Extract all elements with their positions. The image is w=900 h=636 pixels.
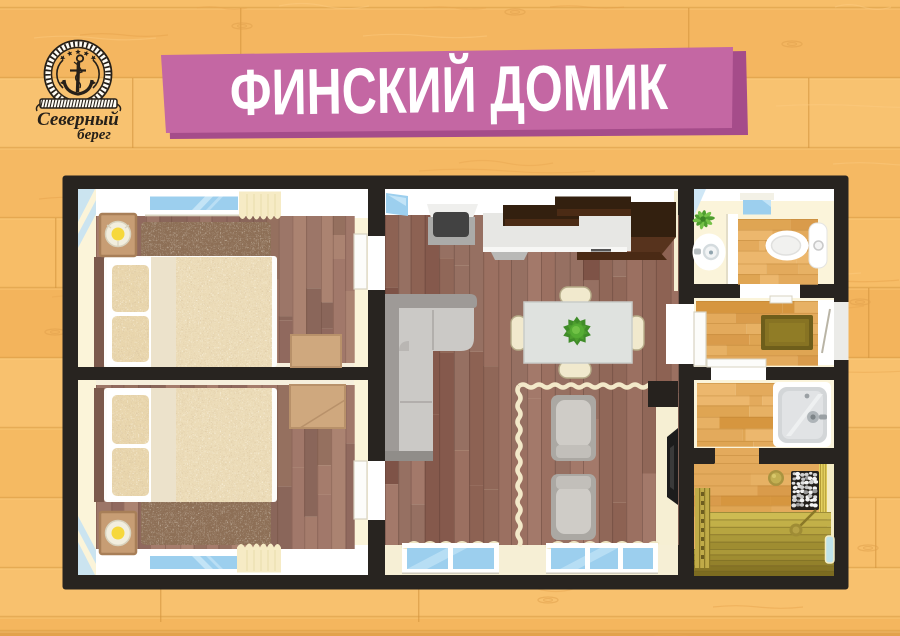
svg-text:ФИНСКИЙ ДОМИК: ФИНСКИЙ ДОМИК bbox=[229, 50, 668, 129]
svg-text:берег: берег bbox=[77, 127, 111, 143]
